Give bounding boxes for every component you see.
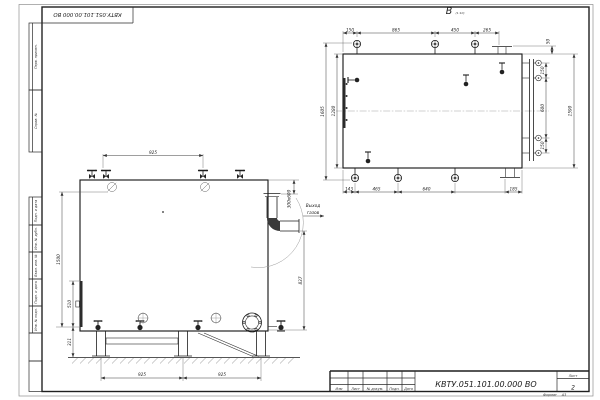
view-b-label-note: (1:10) [456,11,465,15]
valve-icon [365,152,371,163]
valve-icon [277,320,286,331]
side-label: Перв. примен. [34,44,38,69]
dim-label: 465 [373,186,381,191]
dim-label: 150 [540,66,545,74]
dim-label: 50 [546,39,551,45]
side-label: Справ. № [34,112,38,129]
side-label: Инв. № дубл. [34,227,38,250]
view-front: Выход газов 925 1500 510 311 837 300х600 [56,150,324,381]
top-designation-stamp: КВТУ.051.101.00.000 ВО [42,7,133,23]
designation-text: КВТУ.051.101.00.000 ВО [435,380,536,389]
sheet-label: Лист [568,374,579,378]
valve-icon [451,168,460,182]
dim-label: 1280 [331,105,336,116]
top-designation-text: КВТУ.051.101.00.000 ВО [53,11,122,17]
view-b-label: В [446,6,453,17]
valve-icon [431,40,440,54]
sheet-number: 2 [571,385,575,392]
dim-label: 265 [483,27,491,32]
dim-label: 865 [392,27,400,32]
side-label: Подп. и дата [34,200,38,222]
circle-mark-icon [137,312,149,324]
dim-label: 925 [149,150,157,155]
dim-label: 510 [67,300,72,308]
valve-icon [235,170,245,180]
valve-icon [348,77,359,83]
dim-label: 925 [138,372,146,377]
title-col-label: № докум. [366,387,384,391]
dim-label: 925 [218,372,226,377]
valve-icon [394,168,403,182]
side-label: Подп. и дата [34,281,38,303]
circle-mark-icon [210,312,222,324]
side-label: Взам. инв. № [34,254,38,277]
view-front-dimensions: 925 1500 510 311 837 300х600 925 925 [56,150,307,381]
format-value: А3 [561,393,566,397]
dim-label: 1605 [320,106,325,117]
dim-label: 1590 [568,105,573,116]
valve-icon [194,320,203,331]
dim-label: 311 [67,338,72,346]
title-col-label: Дата [403,387,413,391]
outlet-note: газов [307,211,320,216]
dim-label: 600 [540,104,545,112]
dim-label: 150 [540,141,545,149]
valve-icon [499,63,505,74]
dim-label: 640 [423,186,431,191]
valve-icon [198,170,208,180]
vessel-front-outline [80,180,268,331]
lug-mark-icon [108,183,117,192]
ladder [522,59,541,161]
outlet-note: Выход [306,203,321,209]
valve-icon [471,40,480,54]
dim-label: 300х600 [287,189,292,208]
manhole-door [76,281,83,327]
flange-face [243,313,262,332]
valve-icon [87,170,97,180]
dim-label: 1500 [56,254,61,265]
drawing-sheet: Перв. примен. Справ. № Подп. и дата Инв.… [0,0,600,400]
format-label: Формат [543,393,558,397]
lug-mark-icon [201,183,210,192]
side-column: Перв. примен. Справ. № Подп. и дата Инв.… [29,23,42,392]
valve-icon [353,40,362,54]
dim-label: 450 [451,27,459,32]
supports [68,332,300,364]
view-b: В (1:10) [320,6,578,194]
valve-icon [94,320,103,331]
title-block: Изм Лист № докум. Подп. Дата КВТУ.051.10… [330,371,589,397]
inner-frame [42,7,589,392]
valve-icon [101,170,111,180]
title-col-label: Подп. [389,387,399,391]
valve-icon [463,75,469,86]
valve-icon [351,168,360,182]
title-col-label: Изм [336,387,343,391]
title-col-label: Лист [350,387,361,391]
dim-label: 150 [346,27,354,32]
dim-label: 143 [345,186,353,191]
center-dot [162,211,164,213]
top-flange [492,47,512,55]
drawing-canvas: Перв. примен. Справ. № Подп. и дата Инв.… [0,0,600,400]
bottom-flange [500,168,520,178]
side-label: Инв. № подл. [34,308,38,331]
dim-label: 837 [298,276,303,284]
dim-label: 185 [510,186,518,191]
hatch-door [343,78,347,128]
